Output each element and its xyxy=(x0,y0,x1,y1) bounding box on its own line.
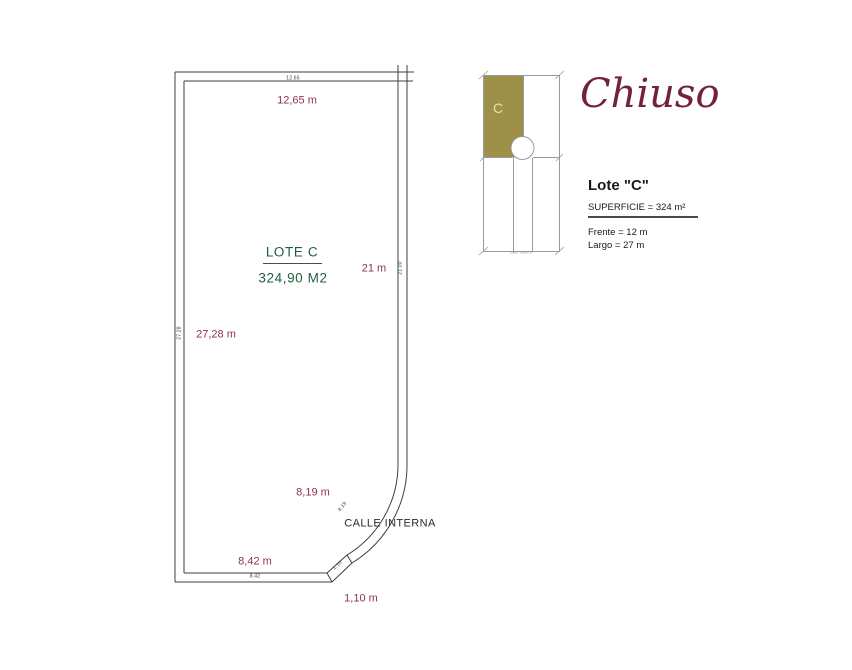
lot-title-underline xyxy=(263,263,322,264)
brand-logo: Chiuso xyxy=(580,74,710,114)
key-map-lot-letter: C xyxy=(493,101,503,115)
dimension-bottom: 8,42 m xyxy=(238,557,272,568)
street-curve-inner xyxy=(347,465,398,555)
key-map-road xyxy=(514,158,533,251)
plan-sheet: 12.65 27.28 21.00 8.19 8.42 1.10 12,65 m… xyxy=(0,0,852,670)
dimension-left: 27,28 m xyxy=(196,330,236,341)
key-map-culdesac xyxy=(511,137,534,160)
lot-title: LOTE C xyxy=(266,245,318,259)
tick-left: 27.28 xyxy=(178,326,183,340)
tick-top: 12.65 xyxy=(286,77,300,82)
lot-outline xyxy=(175,65,414,582)
key-map-caption: calle interna xyxy=(510,251,531,255)
dimension-top: 12,65 m xyxy=(277,96,317,107)
plan-drawing xyxy=(0,0,852,670)
details-title: Lote "C" xyxy=(588,178,649,193)
street-curve-outer xyxy=(352,465,407,563)
lot-area: 324,90 M2 xyxy=(258,271,327,285)
street-label: CALLE INTERNA xyxy=(344,519,435,530)
dimension-chamfer: 1,10 m xyxy=(344,594,378,605)
dimension-right: 21 m xyxy=(362,264,386,275)
details-depth: Largo = 27 m xyxy=(588,241,644,251)
key-map xyxy=(479,71,564,255)
tick-bottom: 8.42 xyxy=(250,575,261,580)
details-area: SUPERFICIE = 324 m² xyxy=(588,203,685,213)
tick-right: 21.00 xyxy=(399,261,404,275)
details-front: Frente = 12 m xyxy=(588,228,647,238)
dimension-curve: 8,19 m xyxy=(296,488,330,499)
details-underline xyxy=(588,216,698,218)
